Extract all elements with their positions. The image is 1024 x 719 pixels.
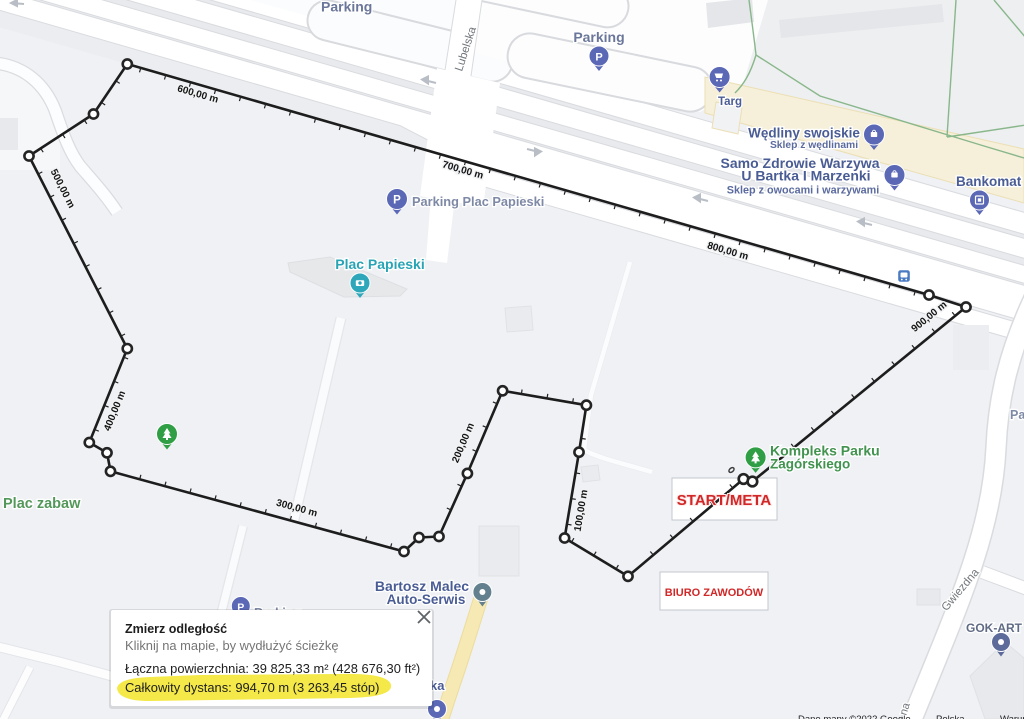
svg-text:Parking Plac Papieski: Parking Plac Papieski (412, 194, 544, 209)
svg-text:Parking: Parking (321, 0, 372, 15)
svg-text:Polska: Polska (936, 714, 965, 719)
svg-text:Zmierz odległość: Zmierz odległość (125, 622, 227, 636)
svg-text:Wędliny swojskie: Wędliny swojskie (748, 126, 860, 141)
svg-text:Zagórskiego: Zagórskiego (770, 457, 850, 472)
svg-text:U Bartka I Marzenki: U Bartka I Marzenki (741, 168, 870, 184)
svg-text:Plac zabaw: Plac zabaw (3, 496, 81, 512)
svg-text:Sklep z wędlinami: Sklep z wędlinami (770, 140, 858, 151)
svg-text:Sklep z owocami i warzywami: Sklep z owocami i warzywami (727, 185, 879, 197)
svg-text:Całkowity dystans: 994,70 m (3: Całkowity dystans: 994,70 m (3 263,45 st… (125, 680, 379, 695)
svg-text:BIURO ZAWODÓW: BIURO ZAWODÓW (665, 586, 764, 599)
svg-text:Parking: Parking (573, 29, 624, 45)
svg-text:Pa: Pa (1010, 408, 1024, 422)
svg-text:Bankomat: Bankomat (956, 174, 1022, 189)
svg-text:Łączna powierzchnia: 39 825,33: Łączna powierzchnia: 39 825,33 m² (428 6… (125, 661, 420, 676)
svg-text:Warunki: Warunki (1000, 714, 1024, 719)
svg-text:GOK-ART: GOK-ART (966, 621, 1023, 635)
svg-text:Auto-Serwis: Auto-Serwis (387, 592, 466, 607)
svg-text:Targ: Targ (718, 96, 742, 108)
svg-text:P: P (393, 195, 401, 207)
svg-text:Plac Papieski: Plac Papieski (335, 256, 425, 272)
svg-text:Dane mapy ©2022 Google: Dane mapy ©2022 Google (798, 714, 911, 719)
svg-text:Kliknij na mapie, by wydłużyć: Kliknij na mapie, by wydłużyć ścieżkę (125, 638, 339, 653)
svg-text:P: P (595, 52, 602, 64)
svg-text:START/META: START/META (677, 492, 772, 509)
